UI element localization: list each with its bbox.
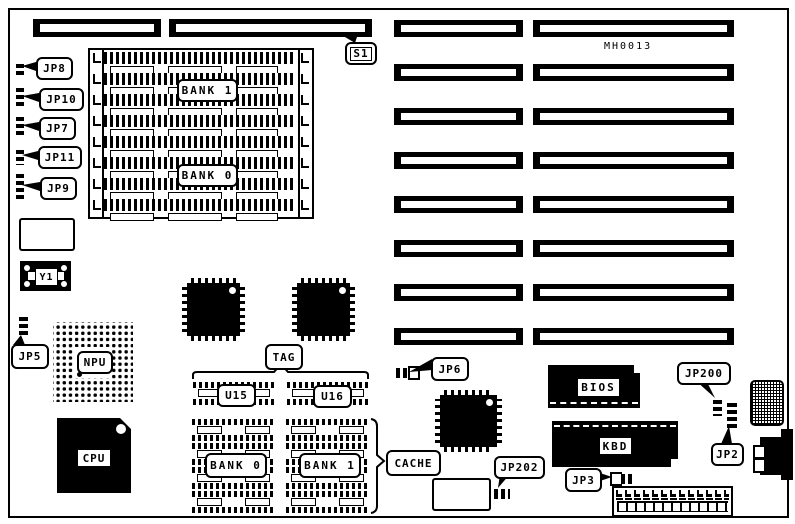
header-dashes — [616, 494, 729, 497]
jp200-label: JP200 — [677, 362, 731, 385]
dip-part — [291, 426, 316, 434]
jp7-jumper — [14, 114, 26, 140]
simm-latch-left — [93, 53, 101, 63]
cache-bank1-label: BANK 1 — [299, 453, 361, 478]
jp6-label: JP6 — [431, 357, 469, 381]
bios-socket-line — [550, 402, 638, 404]
simm-bank1-label: BANK 1 — [177, 79, 238, 102]
simm-latch-left — [93, 158, 101, 168]
bottom-header-connector — [612, 486, 733, 517]
npu-label: NPU — [77, 351, 113, 374]
y1-label: Y1 — [35, 268, 58, 286]
qfp-pins — [182, 287, 187, 332]
jp10-label: JP10 — [39, 88, 84, 111]
crystal-pad — [28, 272, 35, 280]
simm-latch-left — [93, 116, 101, 126]
bios-label: BIOS — [577, 378, 620, 397]
dip-part — [286, 497, 369, 507]
isa-slot-long-segment — [533, 20, 734, 37]
isa-slot-long-segment — [533, 284, 734, 301]
dip-part — [245, 426, 270, 434]
dip-part — [291, 498, 316, 506]
jp8-label: JP8 — [36, 57, 73, 80]
qfp-pins — [350, 287, 355, 332]
qfp-pin1-dot — [339, 287, 346, 294]
isa-slot-long-segment — [533, 240, 734, 257]
jp10-jumper — [14, 85, 26, 111]
bios-notch — [634, 365, 640, 373]
isa-slot-short-segment — [394, 152, 523, 169]
isa-slot-short-segment — [394, 328, 523, 345]
din-pin — [753, 458, 766, 473]
simm-latch-right — [301, 74, 309, 84]
kbd-notch — [671, 459, 678, 467]
jp2-label: JP2 — [711, 443, 744, 466]
simm-socket-pins — [104, 52, 294, 64]
isa-slot-long-segment — [533, 328, 734, 345]
crystal-hole — [24, 281, 30, 287]
dip-part — [192, 483, 275, 489]
s1-label: S1 — [345, 42, 377, 65]
isa-slot-long-segment — [533, 64, 734, 81]
simm-bank0-label: BANK 0 — [177, 164, 238, 187]
simm-socket-body — [236, 213, 278, 221]
qfp-pins — [301, 278, 346, 283]
simm-latch-left — [93, 74, 101, 84]
chipset-qfp-1 — [187, 283, 240, 336]
simm-socket-pins — [104, 136, 294, 148]
jp9-jumper — [14, 171, 26, 202]
dip-part — [197, 498, 222, 506]
jp9-label: JP9 — [40, 177, 77, 200]
simm-latch-right — [301, 200, 309, 210]
header-midline — [616, 498, 729, 500]
qfp-pins — [292, 287, 297, 332]
simm-latch-left — [93, 179, 101, 189]
jp3-jumper — [618, 472, 634, 486]
simm-sockets — [88, 48, 314, 219]
jp5-jumper — [17, 314, 30, 340]
jp7-label: JP7 — [39, 117, 76, 140]
header-pin-boxes — [617, 501, 728, 512]
simm-socket-pins — [104, 115, 294, 127]
isa-slot-short-segment — [394, 284, 523, 301]
isa-slot-short-segment — [394, 196, 523, 213]
cache-bank0-label: BANK 0 — [205, 453, 267, 478]
dip-part — [286, 425, 369, 435]
dip-part — [245, 498, 270, 506]
isa-slot-short-segment — [394, 20, 523, 37]
u16-label: U16 — [313, 385, 352, 408]
simm-latch-left — [93, 200, 101, 210]
dip-part — [339, 426, 364, 434]
simm-latch-right — [301, 158, 309, 168]
u15-label: U15 — [217, 384, 256, 407]
dip-part — [192, 497, 275, 507]
simm-latch-right — [301, 179, 309, 189]
qfp-pins — [444, 447, 493, 452]
simm-latch-left — [93, 137, 101, 147]
isa-slot-long-segment — [533, 152, 734, 169]
simm-latch-right — [301, 116, 309, 126]
qfp-pins — [301, 336, 346, 341]
simm-latch-right — [301, 53, 309, 63]
dip-part — [192, 425, 275, 435]
simm-socket-body — [168, 213, 222, 221]
jp202-jumper — [491, 487, 512, 501]
cache-label: CACHE — [386, 450, 441, 476]
jp6-jumper-open-pin — [408, 366, 420, 380]
qfp-pins — [497, 399, 502, 443]
dip-part — [192, 435, 275, 441]
qfp-pins — [191, 278, 236, 283]
chipset-qfp-2 — [297, 283, 350, 336]
qfp-pin1-dot — [229, 287, 236, 294]
dip-part — [192, 507, 275, 513]
qfp-pin1-dot — [486, 399, 493, 406]
cache-bank0-chip — [192, 491, 275, 513]
qfp-pins — [435, 399, 440, 443]
isa-slot-long-segment — [533, 196, 734, 213]
simm-latch-left — [93, 95, 101, 105]
part-number-text: MH0013 — [604, 41, 652, 52]
empty-socket-outline-1 — [19, 218, 75, 251]
cpu-label: CPU — [77, 449, 111, 467]
s1-label-text: S1 — [350, 47, 371, 61]
crystal-hole — [61, 281, 67, 287]
simm-socket-pins — [104, 199, 294, 211]
jp5-label: JP5 — [11, 344, 49, 369]
cpu-pin1-dot — [116, 424, 126, 434]
simm-latch-right — [301, 95, 309, 105]
simm-socket-body — [110, 213, 154, 221]
dip-part — [286, 435, 369, 441]
qfp-pins — [444, 390, 493, 395]
cache-bank0-chip — [192, 419, 275, 441]
jp2-jumper — [725, 400, 739, 432]
isa-slot-short-segment — [394, 108, 523, 125]
jp8-jumper — [14, 61, 26, 78]
dip-part — [286, 483, 369, 489]
cache-bank1-chip — [286, 419, 369, 441]
isa-slot-short-segment — [394, 240, 523, 257]
isa-slot-short-segment — [394, 64, 523, 81]
dip-part — [286, 507, 369, 513]
jp202-label: JP202 — [494, 456, 545, 479]
dip-part — [197, 426, 222, 434]
jp11-jumper — [14, 147, 26, 167]
kbd-socket-line — [554, 425, 676, 427]
crystal-hole — [61, 265, 67, 271]
din-pin — [753, 445, 766, 459]
top-connector-right — [169, 19, 372, 37]
simm-latch-right — [301, 137, 309, 147]
top-connector-left — [33, 19, 161, 37]
isa-slot-long-segment — [533, 108, 734, 125]
jp200-jumper — [711, 397, 724, 418]
cache-controller-qfp — [440, 395, 497, 447]
crystal-y1: Y1 — [20, 261, 71, 291]
kbd-label: KBD — [599, 437, 632, 455]
motherboard-diagram: MH0013 S1 BANK 1 BANK 0 JP8 JP10 JP7 JP1… — [0, 0, 795, 524]
dip-part — [339, 498, 364, 506]
crystal-hole — [24, 265, 30, 271]
cache-bank1-chip — [286, 491, 369, 513]
empty-socket-outline-2 — [432, 478, 491, 511]
qfp-pins — [240, 287, 245, 332]
jp11-label: JP11 — [38, 146, 82, 169]
power-connector — [750, 380, 784, 426]
tag-label: TAG — [265, 344, 303, 370]
jp3-label: JP3 — [565, 468, 602, 492]
qfp-pins — [191, 336, 236, 341]
